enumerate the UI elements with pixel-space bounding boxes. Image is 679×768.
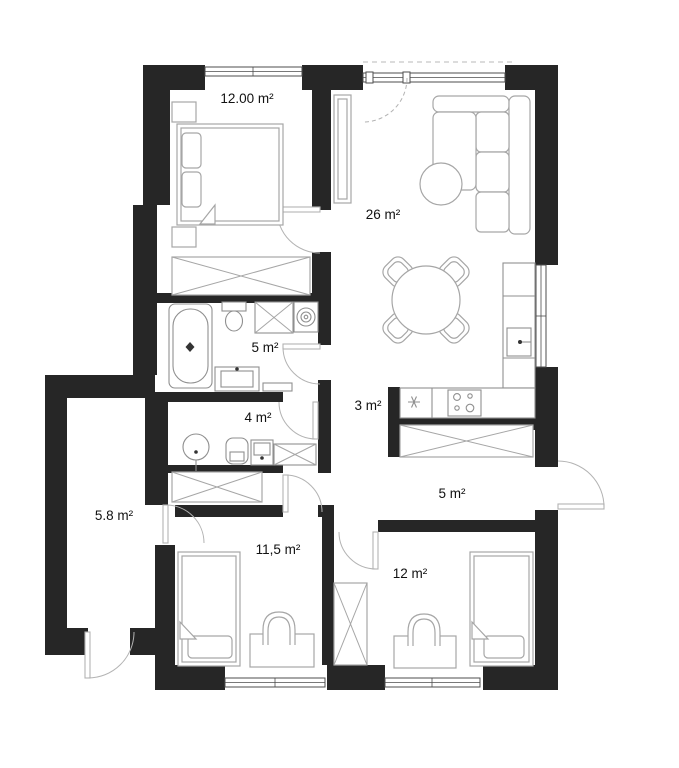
- wall-segment: [535, 90, 558, 265]
- door-wc: [279, 402, 318, 439]
- hallway-wardrobe-left: [172, 472, 262, 502]
- room-label-bathroom: 5 m²: [252, 340, 280, 355]
- wall-segment: [505, 65, 558, 90]
- wall-segment: [143, 65, 205, 90]
- stove: [448, 390, 481, 416]
- bathtub: [169, 304, 212, 388]
- door-entry-exterior: [85, 632, 134, 678]
- dining-table: [392, 266, 460, 334]
- dining-set: [380, 254, 473, 347]
- wall-segment: [302, 65, 363, 90]
- small-vanity: [251, 440, 273, 465]
- pillow: [484, 636, 524, 658]
- room-label-wc: 4 m²: [245, 410, 273, 425]
- washing-machine: [294, 302, 318, 332]
- wall-segment: [535, 367, 558, 467]
- door-bedroom-left: [283, 475, 322, 512]
- double-bed: [177, 124, 283, 225]
- wall-segment: [312, 90, 331, 210]
- wall-segment: [535, 510, 558, 665]
- wall-segment: [155, 392, 283, 402]
- wall-segment: [327, 665, 385, 690]
- wall-segment: [318, 402, 331, 473]
- wall-segment: [45, 375, 155, 398]
- pillow: [182, 172, 201, 207]
- shelf: [263, 383, 292, 391]
- wall-segment: [45, 398, 67, 655]
- window-bedroom-left-bottom: [225, 678, 325, 687]
- nightstand: [172, 102, 196, 122]
- vanity-sink: [215, 367, 292, 391]
- room-label-bedroom-right: 12 m²: [393, 566, 428, 581]
- balcony-door-swing: [363, 78, 407, 122]
- wall-segment: [143, 90, 170, 205]
- wardrobe: [334, 583, 367, 665]
- room-label-living-room: 26 m²: [366, 207, 401, 222]
- room-label-hallway: 5 m²: [439, 486, 467, 501]
- bedroom-left-furniture: [178, 552, 314, 667]
- wall-segment: [388, 387, 400, 457]
- hallway-wardrobe-right: [400, 425, 533, 457]
- wardrobe: [172, 257, 310, 295]
- wall-segment: [133, 205, 157, 375]
- bedroom-right-furniture: [334, 552, 533, 668]
- kitchen-counter-right: [503, 263, 535, 388]
- floor-plan-svg: 12.00 m² 26 m² 5 m² 4 m² 3 m² 5 m² 5.8 m…: [0, 0, 679, 768]
- desk-chair: [408, 614, 440, 646]
- room-label-entry-hall: 5.8 m²: [95, 508, 134, 523]
- toilet: [222, 302, 246, 331]
- room-label-bedroom-main: 12.00 m²: [220, 91, 274, 106]
- pillow: [182, 133, 201, 168]
- window-kitchen-right: [536, 265, 546, 367]
- window-bedroom-right-bottom: [385, 678, 480, 687]
- wall-segment: [145, 398, 168, 505]
- bathroom-cabinet: [255, 302, 293, 333]
- desk-chair: [263, 612, 295, 645]
- bedroom-main-furniture: [172, 102, 310, 295]
- faucet: [518, 340, 522, 344]
- toilet: [226, 438, 248, 464]
- nightstand: [172, 227, 196, 247]
- coffee-table: [420, 163, 462, 205]
- door-bedroom-right: [339, 532, 378, 569]
- tv-panel: [334, 95, 351, 203]
- living-room-furniture: [334, 95, 530, 346]
- wall-segment: [45, 628, 88, 655]
- single-bed: [178, 552, 240, 666]
- room-label-bedroom-left: 11,5 m²: [256, 542, 301, 557]
- wall-segment: [483, 665, 558, 690]
- wc-cabinet: [274, 444, 316, 465]
- wall-segment: [318, 505, 334, 517]
- room-label-passage: 3 m²: [355, 398, 383, 413]
- floor-plan-page: 12.00 m² 26 m² 5 m² 4 m² 3 m² 5 m² 5.8 m…: [0, 0, 679, 768]
- door-main-entrance: [558, 461, 604, 509]
- wall-segment: [318, 302, 331, 345]
- wall-segment: [378, 520, 535, 532]
- wall-segment: [318, 380, 331, 402]
- kitchen-counter-bottom: [400, 388, 535, 418]
- window-bedroom-top: [205, 67, 302, 76]
- wall-segment: [155, 545, 175, 670]
- door-bathroom: [283, 344, 320, 384]
- wall-segment: [322, 517, 334, 665]
- single-bed: [470, 552, 533, 666]
